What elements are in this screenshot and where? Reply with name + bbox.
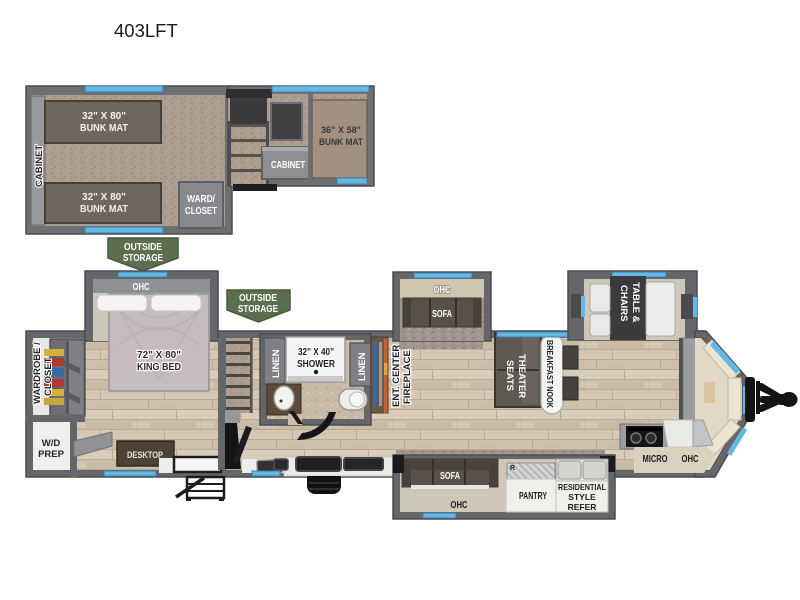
svg-text:KING BED: KING BED xyxy=(137,361,181,373)
svg-text:CLOSET: CLOSET xyxy=(43,357,54,396)
svg-text:FIREPLACE: FIREPLACE xyxy=(402,350,413,404)
svg-text:STORAGE: STORAGE xyxy=(238,304,278,315)
svg-text:OHC: OHC xyxy=(133,282,150,293)
svg-text:MICRO: MICRO xyxy=(643,454,668,465)
svg-text:32" X 80": 32" X 80" xyxy=(82,192,126,203)
svg-text:WARDROBE /: WARDROBE / xyxy=(32,342,43,404)
svg-text:RESIDENTIAL: RESIDENTIAL xyxy=(558,482,606,492)
svg-text:CABINET: CABINET xyxy=(271,160,305,171)
svg-text:PANTRY: PANTRY xyxy=(519,491,547,502)
svg-text:OUTSIDE: OUTSIDE xyxy=(124,242,162,253)
svg-text:OHC: OHC xyxy=(451,499,468,511)
svg-text:OHC: OHC xyxy=(682,454,699,465)
svg-text:BUNK MAT: BUNK MAT xyxy=(80,123,128,134)
svg-text:CLOSET: CLOSET xyxy=(185,206,217,217)
svg-text:BUNK MAT: BUNK MAT xyxy=(80,204,128,215)
svg-text:SHOWER: SHOWER xyxy=(297,359,336,370)
svg-text:OUTSIDE: OUTSIDE xyxy=(239,293,277,304)
svg-text:DESKTOP: DESKTOP xyxy=(127,450,163,460)
svg-text:ENT. CENTER: ENT. CENTER xyxy=(391,345,402,407)
svg-text:PREP: PREP xyxy=(38,449,65,460)
svg-text:SOFA: SOFA xyxy=(440,470,460,482)
svg-text:STORAGE: STORAGE xyxy=(123,253,163,264)
svg-text:LINEN: LINEN xyxy=(271,349,282,378)
svg-text:CABINET: CABINET xyxy=(34,145,45,187)
svg-text:403LFT: 403LFT xyxy=(114,20,178,41)
svg-text:72" X 80": 72" X 80" xyxy=(137,349,181,361)
svg-text:WARD/: WARD/ xyxy=(187,194,215,205)
svg-text:TABLE &: TABLE & xyxy=(630,282,641,323)
svg-text:32" X 80": 32" X 80" xyxy=(82,111,126,122)
svg-text:THEATER: THEATER xyxy=(516,354,527,398)
svg-text:REFER: REFER xyxy=(568,502,597,512)
svg-text:W/D: W/D xyxy=(42,438,61,449)
svg-text:32" X 40": 32" X 40" xyxy=(298,347,334,358)
svg-text:LINEN: LINEN xyxy=(357,352,368,381)
svg-text:CHAIRS: CHAIRS xyxy=(618,285,629,321)
svg-text:OHC: OHC xyxy=(434,284,451,296)
svg-text:SEATS: SEATS xyxy=(504,360,515,391)
svg-text:BREAKFAST NOOK: BREAKFAST NOOK xyxy=(545,340,555,409)
svg-text:STYLE: STYLE xyxy=(568,492,596,502)
svg-text:BUNK MAT: BUNK MAT xyxy=(319,137,363,148)
svg-text:36" X 58": 36" X 58" xyxy=(321,125,361,136)
svg-text:R: R xyxy=(510,465,515,472)
svg-text:SOFA: SOFA xyxy=(432,308,452,320)
